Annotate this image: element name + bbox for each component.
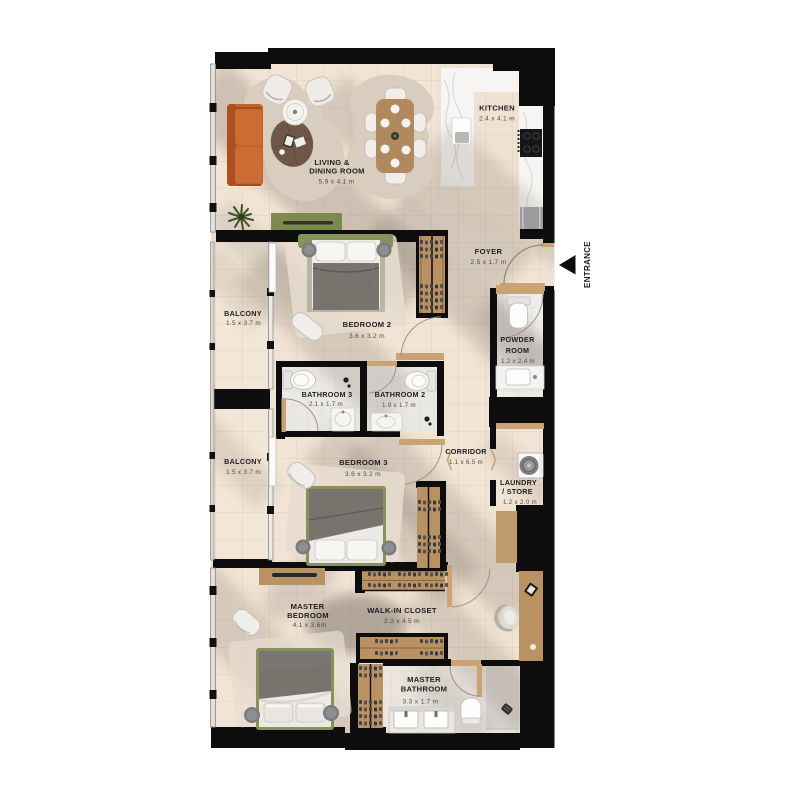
- svg-text:/ STORE: / STORE: [502, 487, 533, 496]
- svg-text:BALCONY: BALCONY: [224, 457, 262, 466]
- svg-text:WALK-IN CLOSET: WALK-IN CLOSET: [367, 606, 437, 615]
- svg-text:4.1 x 3.6m: 4.1 x 3.6m: [293, 622, 327, 629]
- svg-text:BALCONY: BALCONY: [224, 309, 262, 318]
- svg-text:BATHROOM: BATHROOM: [401, 685, 448, 694]
- svg-text:LAUNDRY: LAUNDRY: [500, 478, 537, 487]
- svg-text:KITCHEN: KITCHEN: [479, 104, 515, 113]
- svg-text:DINING ROOM: DINING ROOM: [309, 167, 365, 176]
- svg-text:FOYER: FOYER: [475, 247, 503, 256]
- svg-text:1.5 x 3.7 m: 1.5 x 3.7 m: [226, 320, 261, 327]
- svg-text:1.2 x 2.4 m: 1.2 x 2.4 m: [501, 358, 535, 365]
- svg-text:5.9 x 4.1 m: 5.9 x 4.1 m: [319, 179, 355, 186]
- svg-text:3.6 x 3.2 m: 3.6 x 3.2 m: [345, 471, 381, 478]
- svg-text:3.3 x 1.7 m: 3.3 x 1.7 m: [403, 699, 439, 706]
- svg-text:BEDROOM 3: BEDROOM 3: [339, 458, 388, 467]
- svg-text:ENTRANCE: ENTRANCE: [583, 241, 592, 288]
- svg-text:POWDER: POWDER: [500, 335, 535, 344]
- svg-text:3.6 x 3.2 m: 3.6 x 3.2 m: [349, 333, 385, 340]
- svg-text:CORRIDOR: CORRIDOR: [445, 447, 487, 456]
- svg-text:2.4 x 4.1 m: 2.4 x 4.1 m: [479, 116, 515, 123]
- svg-text:BATHROOM 2: BATHROOM 2: [375, 390, 426, 399]
- svg-text:1.2 x 2.0 m: 1.2 x 2.0 m: [503, 499, 537, 506]
- svg-text:2.1 x 1.7 m: 2.1 x 1.7 m: [309, 401, 343, 408]
- svg-text:BATHROOM 3: BATHROOM 3: [302, 390, 353, 399]
- svg-text:2.3 x 4.5 m: 2.3 x 4.5 m: [384, 618, 420, 625]
- svg-text:1.9 x 1.7 m: 1.9 x 1.7 m: [382, 402, 416, 409]
- svg-text:BEDROOM: BEDROOM: [287, 611, 329, 620]
- svg-text:ROOM: ROOM: [506, 346, 530, 355]
- svg-text:MASTER: MASTER: [291, 602, 325, 611]
- svg-text:1.1 x 6.5 m: 1.1 x 6.5 m: [449, 459, 483, 466]
- svg-text:MASTER: MASTER: [407, 675, 441, 684]
- svg-text:1.5 x 3.7 m: 1.5 x 3.7 m: [226, 469, 261, 476]
- svg-text:BEDROOM 2: BEDROOM 2: [343, 320, 392, 329]
- svg-text:2.5 x 1.7 m: 2.5 x 1.7 m: [471, 259, 507, 266]
